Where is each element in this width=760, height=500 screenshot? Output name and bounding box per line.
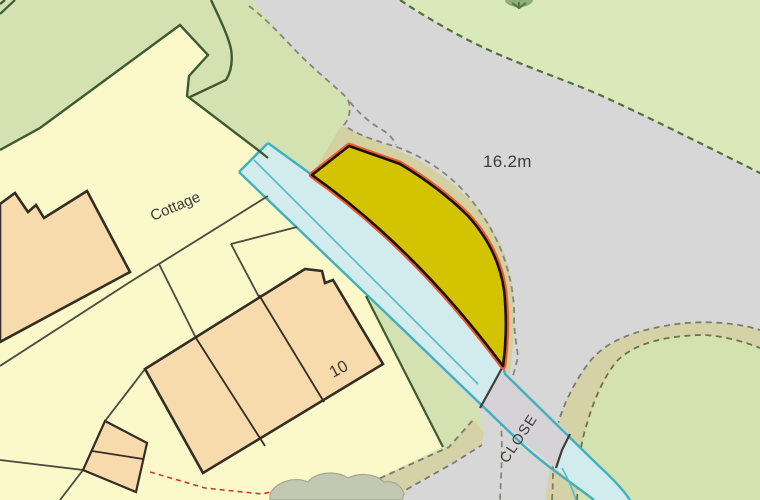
- svg-text:16.2m: 16.2m: [483, 152, 532, 171]
